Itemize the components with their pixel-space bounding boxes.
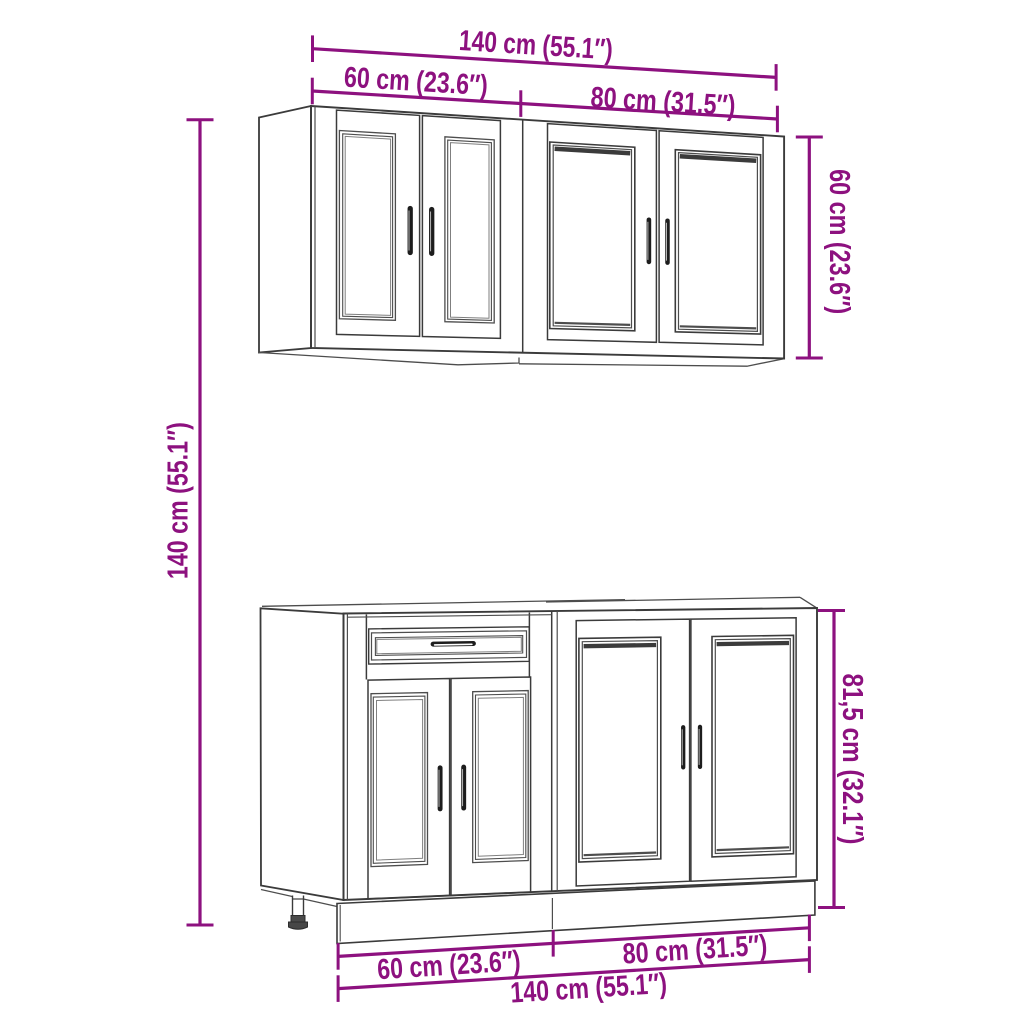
svg-text:81,5 cm (32.1″): 81,5 cm (32.1″) (836, 674, 868, 845)
svg-text:140 cm (55.1″): 140 cm (55.1″) (163, 422, 195, 579)
svg-text:60 cm (23.6″): 60 cm (23.6″) (823, 169, 855, 314)
